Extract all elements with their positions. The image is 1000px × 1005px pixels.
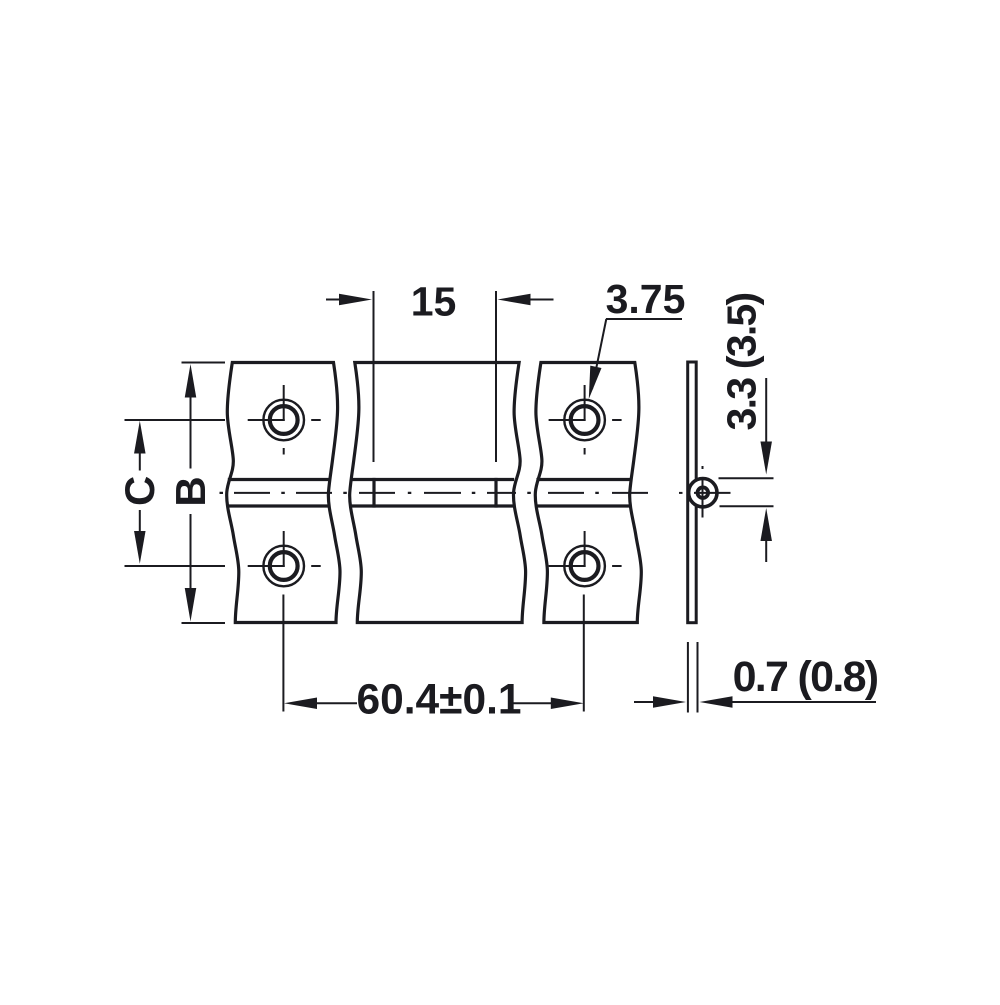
svg-text:3.3 (3.5): 3.3 (3.5) — [719, 293, 765, 430]
svg-text:15: 15 — [411, 279, 457, 325]
svg-text:C: C — [116, 476, 163, 506]
svg-text:0.7 (0.8): 0.7 (0.8) — [733, 653, 878, 701]
svg-text:3.75: 3.75 — [606, 276, 686, 322]
svg-text:B: B — [167, 476, 214, 506]
svg-text:60.4±0.1: 60.4±0.1 — [356, 677, 521, 724]
